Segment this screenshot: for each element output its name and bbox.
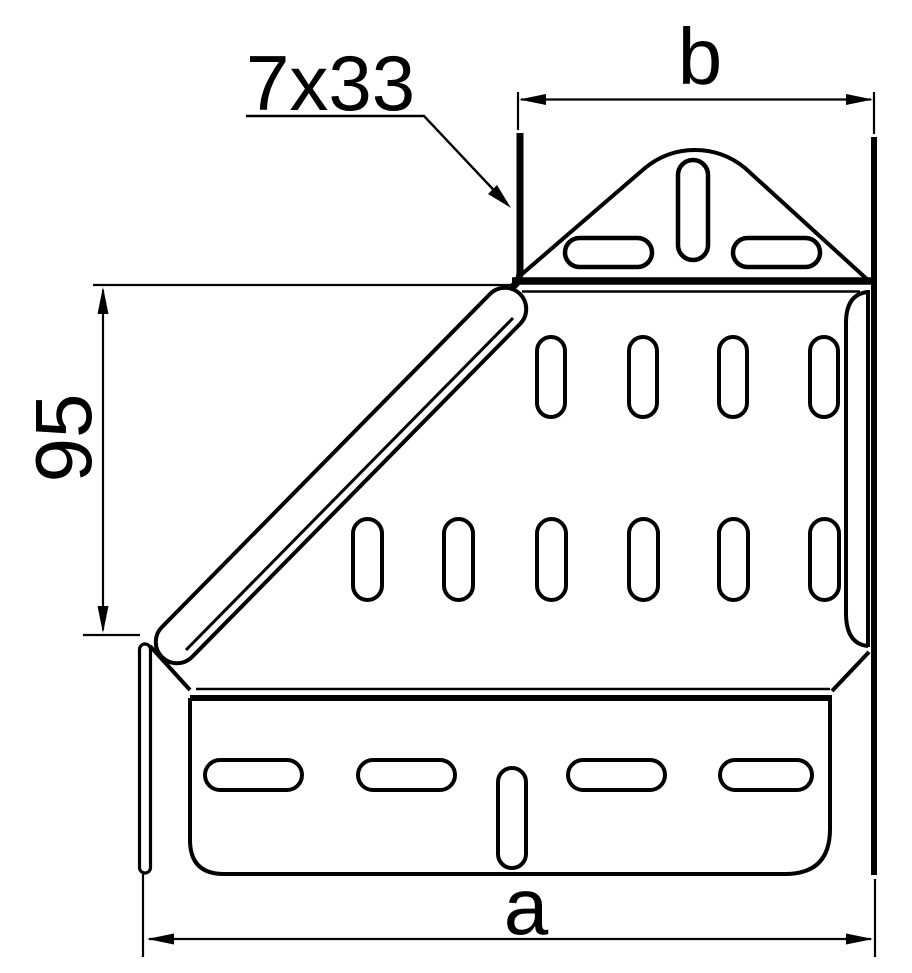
right-corner-fold bbox=[832, 652, 869, 691]
oblong-hole-vertical bbox=[498, 768, 526, 868]
right-fold-flange bbox=[846, 292, 868, 646]
leader-line bbox=[246, 116, 505, 202]
oblong-hole-vertical bbox=[719, 519, 748, 600]
arrowhead-right bbox=[846, 934, 873, 945]
top-left-flange-edge bbox=[510, 133, 520, 288]
diagonal-fold-flange bbox=[156, 288, 526, 663]
callout-7x33 bbox=[246, 116, 511, 208]
arrowhead-up bbox=[98, 287, 109, 314]
arrowhead-down bbox=[98, 606, 109, 633]
oblong-hole-vertical bbox=[537, 519, 566, 600]
technical-drawing-canvas: b 95 a 7x33 bbox=[0, 0, 912, 973]
oblong-hole-vertical bbox=[678, 160, 708, 260]
arrowhead-left bbox=[519, 94, 546, 105]
oblong-hole-vertical bbox=[629, 337, 657, 417]
left-corner-fold bbox=[150, 646, 190, 690]
oblong-hole-vertical bbox=[353, 519, 382, 600]
dimension-95-label: 95 bbox=[19, 394, 108, 483]
oblong-hole-horizontal bbox=[733, 238, 820, 267]
middle-web bbox=[156, 288, 868, 663]
oblong-hole-horizontal bbox=[720, 760, 812, 790]
reducer-drawing: b 95 a 7x33 bbox=[0, 0, 912, 973]
arrowhead-right bbox=[846, 94, 873, 105]
callout-7x33-label: 7x33 bbox=[246, 39, 415, 127]
dimension-a-label: a bbox=[504, 862, 549, 951]
oblong-hole-vertical bbox=[444, 519, 473, 600]
bottom-left-flange-edge bbox=[140, 644, 151, 873]
top-end-plate bbox=[512, 150, 872, 292]
oblong-hole-horizontal bbox=[358, 760, 455, 790]
arrowhead-left bbox=[147, 934, 174, 945]
dimension-b-label: b bbox=[678, 12, 723, 101]
oblong-hole-horizontal bbox=[565, 238, 652, 267]
oblong-hole-vertical bbox=[719, 337, 747, 417]
bottom-side-wall bbox=[140, 644, 870, 874]
oblong-hole-vertical bbox=[537, 337, 565, 417]
oblong-hole-horizontal bbox=[568, 760, 665, 790]
oblong-hole-vertical bbox=[629, 519, 658, 600]
oblong-hole-vertical bbox=[810, 337, 838, 417]
side-wall-left-edge bbox=[190, 698, 224, 874]
oblong-hole-vertical bbox=[810, 519, 839, 600]
oblong-hole-horizontal bbox=[205, 760, 302, 790]
